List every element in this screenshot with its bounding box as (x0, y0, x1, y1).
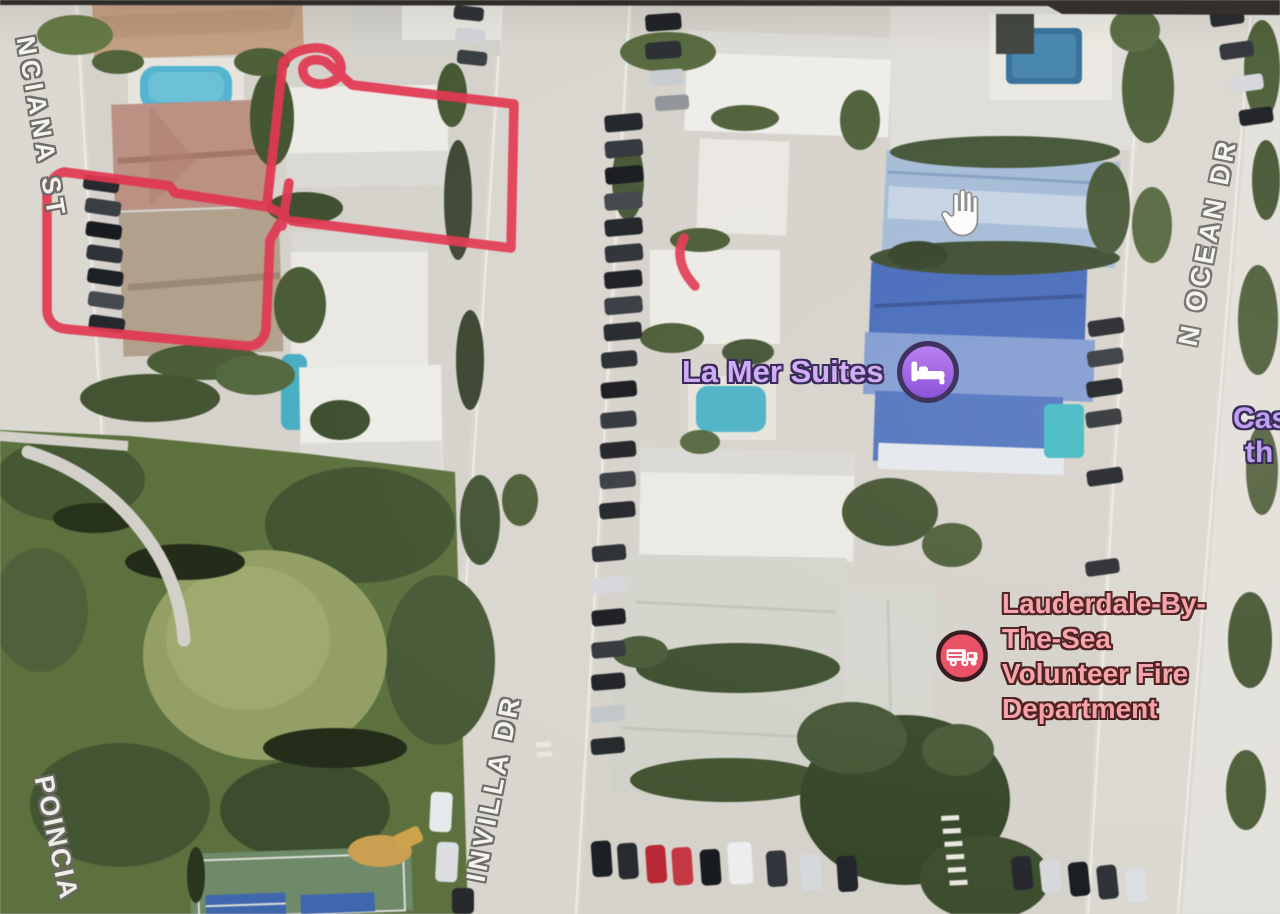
bed-icon[interactable] (896, 340, 960, 404)
fire-truck-icon[interactable] (935, 629, 989, 683)
street-label-n-ocean-dr: N OCEAN DR (1173, 135, 1244, 348)
street-label-bougainvilla-dr: INVILLA DR (461, 692, 528, 885)
street-label-poinciana-partial: POINCIA (28, 773, 85, 903)
poi-label-partial-right[interactable]: Cas th (1233, 402, 1280, 470)
fire-poi-label-line[interactable]: Lauderdale-By- (1002, 586, 1206, 621)
fire-poi-label-line[interactable]: Volunteer Fire (1002, 656, 1206, 691)
partial-poi-line[interactable]: Cas (1233, 402, 1280, 436)
open-hand-cursor-icon (936, 186, 988, 242)
fire-poi-label-line[interactable]: Department (1002, 691, 1206, 726)
street-label-poinciana-st: NCIANA ST (10, 34, 73, 222)
fire-poi-label-line[interactable]: The-Sea (1002, 621, 1206, 656)
map-canvas[interactable]: NCIANA ST POINCIA INVILLA DR N OCEAN DR … (0, 0, 1280, 914)
poi-fire-department[interactable]: Lauderdale-By- The-Sea Volunteer Fire De… (1002, 586, 1206, 726)
poi-la-mer-suites[interactable]: La Mer Suites (682, 341, 960, 403)
partial-poi-line[interactable]: th (1233, 436, 1280, 470)
hotel-poi-label[interactable]: La Mer Suites (682, 354, 884, 390)
